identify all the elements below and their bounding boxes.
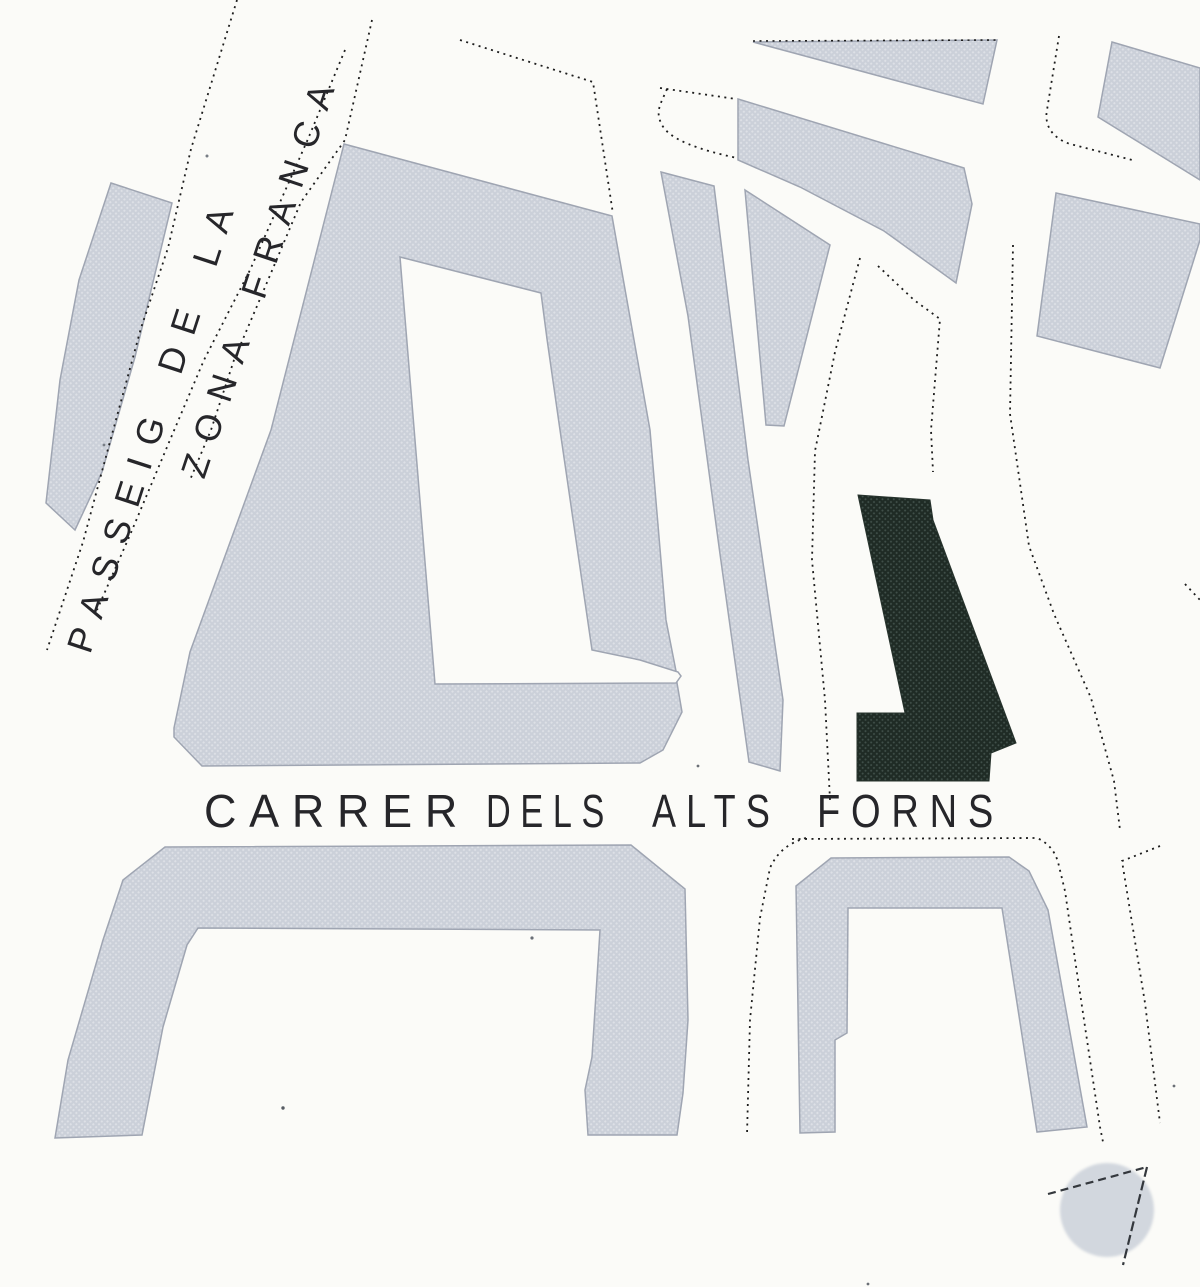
svg-text:CARRERDELSALTSFORNS: CARRERDELSALTSFORNS: [204, 785, 1004, 837]
